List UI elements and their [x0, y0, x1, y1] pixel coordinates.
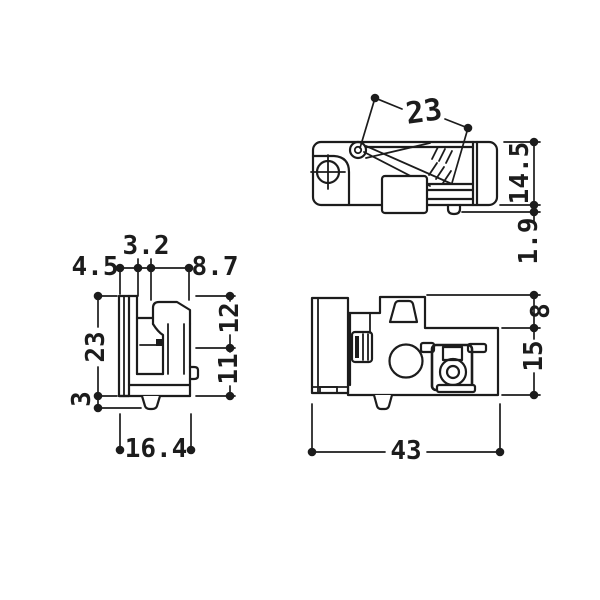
dim-label-front-height: 15	[519, 340, 549, 371]
latch-window-slot	[355, 336, 359, 358]
dim-label-base-thickness: 3	[67, 391, 97, 407]
dim-label-spring-length: 23	[404, 92, 445, 132]
dim-label-side-width: 16.4	[125, 434, 188, 464]
latch-button	[382, 176, 427, 213]
technical-drawing-page: 23 14.5 1.9	[0, 0, 600, 600]
latch-step-notch	[156, 339, 164, 346]
dim-label-front-width: 43	[390, 436, 421, 466]
dim-label-upper-height: 12	[215, 302, 245, 333]
dim-label-side-height: 23	[81, 331, 111, 362]
paper-background	[0, 0, 600, 600]
side-foot	[142, 396, 160, 409]
housing-bottom-bar	[437, 385, 475, 392]
dim-label-pin-protrusion: 1.9	[514, 218, 544, 265]
drawing-canvas: 23 14.5 1.9	[0, 0, 600, 600]
dim-label-plate-offset: 4.5	[72, 252, 119, 282]
dim-label-hook-width: 8.7	[192, 252, 239, 282]
dim-label-slot-width: 3.2	[123, 231, 170, 261]
dim-label-body-depth: 14.5	[505, 142, 535, 205]
dim-label-top-step: 8	[526, 303, 556, 319]
front-foot	[374, 395, 392, 409]
dim-label-lower-height: 11	[214, 353, 244, 384]
